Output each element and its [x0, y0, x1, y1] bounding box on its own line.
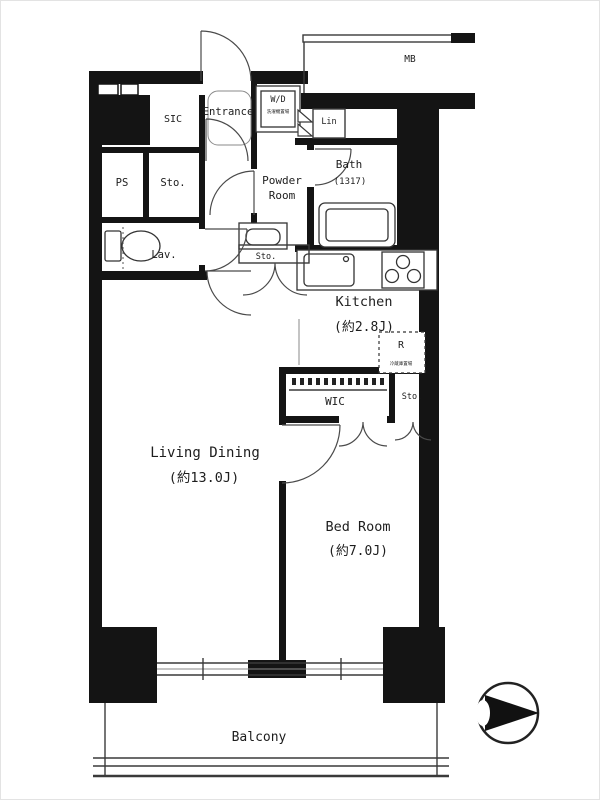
- room-label-living-dining: Living Dining: [150, 445, 260, 461]
- label-powder-storage: Sto.: [256, 252, 276, 262]
- label-hall-storage: Sto.: [160, 177, 185, 189]
- bedroom-door: [282, 425, 340, 483]
- bathtub: [319, 203, 395, 247]
- room-label-wic: WIC: [325, 395, 345, 408]
- label-linen: Lin: [321, 117, 336, 127]
- room-size-living-dining: (約13.0J): [169, 470, 239, 486]
- label-bedroom-storage: Sto.: [402, 392, 422, 402]
- room-label-powder-2: Room: [269, 189, 296, 202]
- room-size-bath: (1317): [334, 177, 367, 187]
- labels: SIC Entrance W/D 洗濯機置場 Lin MB PS Sto. Po…: [116, 54, 423, 745]
- floor-plan-svg: SIC Entrance W/D 洗濯機置場 Lin MB PS Sto. Po…: [1, 1, 600, 800]
- room-label-entrance: Entrance: [203, 106, 254, 118]
- room-size-bed-room: (約7.0J): [328, 544, 388, 559]
- label-pipe-shaft: PS: [116, 177, 129, 189]
- faucet-icon: [344, 257, 349, 262]
- label-refrigerator: R: [398, 340, 405, 351]
- room-label-bed-room: Bed Room: [325, 519, 390, 535]
- washer-dryer-space: [256, 86, 300, 132]
- living-door: [207, 271, 251, 315]
- toilet: [105, 227, 160, 269]
- room-label-powder-1: Powder: [262, 174, 302, 187]
- wic-doors: [339, 422, 387, 446]
- powder-room-door: [210, 171, 254, 215]
- walls: [89, 71, 475, 703]
- floor-plan-page: SIC Entrance W/D 洗濯機置場 Lin MB PS Sto. Po…: [0, 0, 600, 800]
- sic-door: [206, 119, 248, 161]
- kitchen-counter: [297, 250, 437, 290]
- wic-hanger-rod: [289, 378, 387, 390]
- label-refrigerator-note: 冷蔵庫置場: [390, 360, 413, 367]
- room-label-kitchen: Kitchen: [336, 294, 393, 310]
- label-washer-dryer-note: 洗濯機置場: [267, 108, 290, 115]
- room-label-balcony: Balcony: [232, 730, 287, 745]
- entrance-door: [201, 31, 251, 81]
- room-size-kitchen: (約2.8J): [334, 320, 394, 335]
- north-arrow-icon: [476, 683, 539, 743]
- room-label-lavatory: Lav.: [151, 249, 176, 261]
- label-washer-dryer: W/D: [270, 95, 285, 105]
- room-label-sic: SIC: [164, 114, 182, 125]
- entrance-step: [208, 91, 251, 145]
- room-label-bath: Bath: [336, 158, 363, 171]
- label-meter-box: MB: [404, 54, 416, 65]
- meter-box-area: [303, 33, 475, 93]
